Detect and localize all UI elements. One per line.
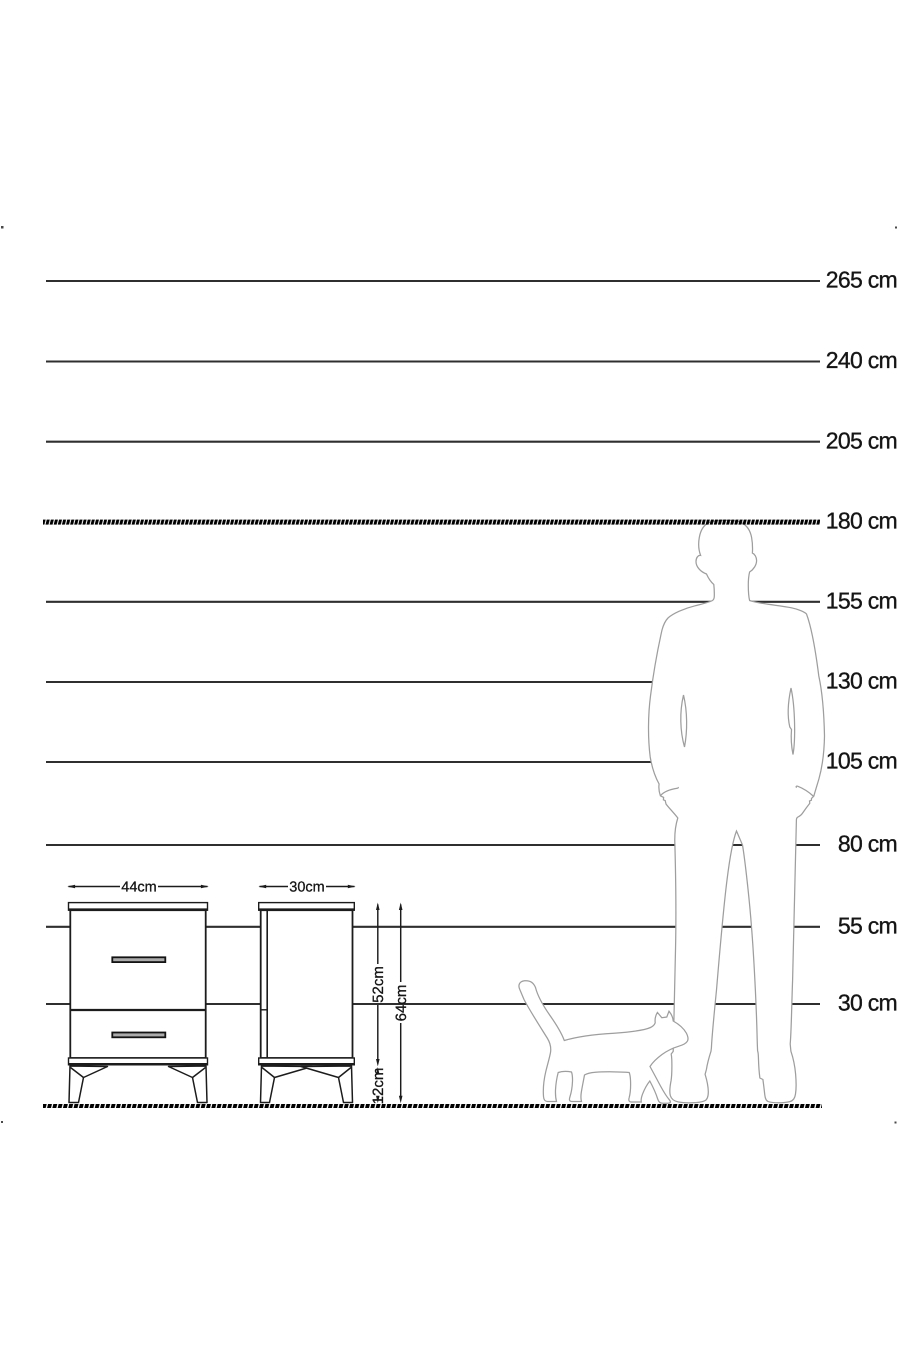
svg-text:130 cm: 130 cm <box>826 668 897 694</box>
svg-text:80 cm: 80 cm <box>838 831 897 857</box>
svg-text:30cm: 30cm <box>289 880 324 896</box>
svg-text:105 cm: 105 cm <box>826 748 897 774</box>
svg-text:205 cm: 205 cm <box>826 427 897 453</box>
svg-text:55 cm: 55 cm <box>838 912 897 938</box>
svg-text:265 cm: 265 cm <box>826 267 897 293</box>
svg-text:240 cm: 240 cm <box>826 347 897 373</box>
svg-text:180 cm: 180 cm <box>826 508 897 534</box>
svg-text:52cm: 52cm <box>370 966 387 1003</box>
svg-text:155 cm: 155 cm <box>826 587 897 613</box>
svg-text:44cm: 44cm <box>121 880 156 896</box>
svg-text:30 cm: 30 cm <box>838 990 897 1016</box>
svg-text:12cm: 12cm <box>370 1068 387 1105</box>
svg-text:64cm: 64cm <box>393 985 410 1022</box>
